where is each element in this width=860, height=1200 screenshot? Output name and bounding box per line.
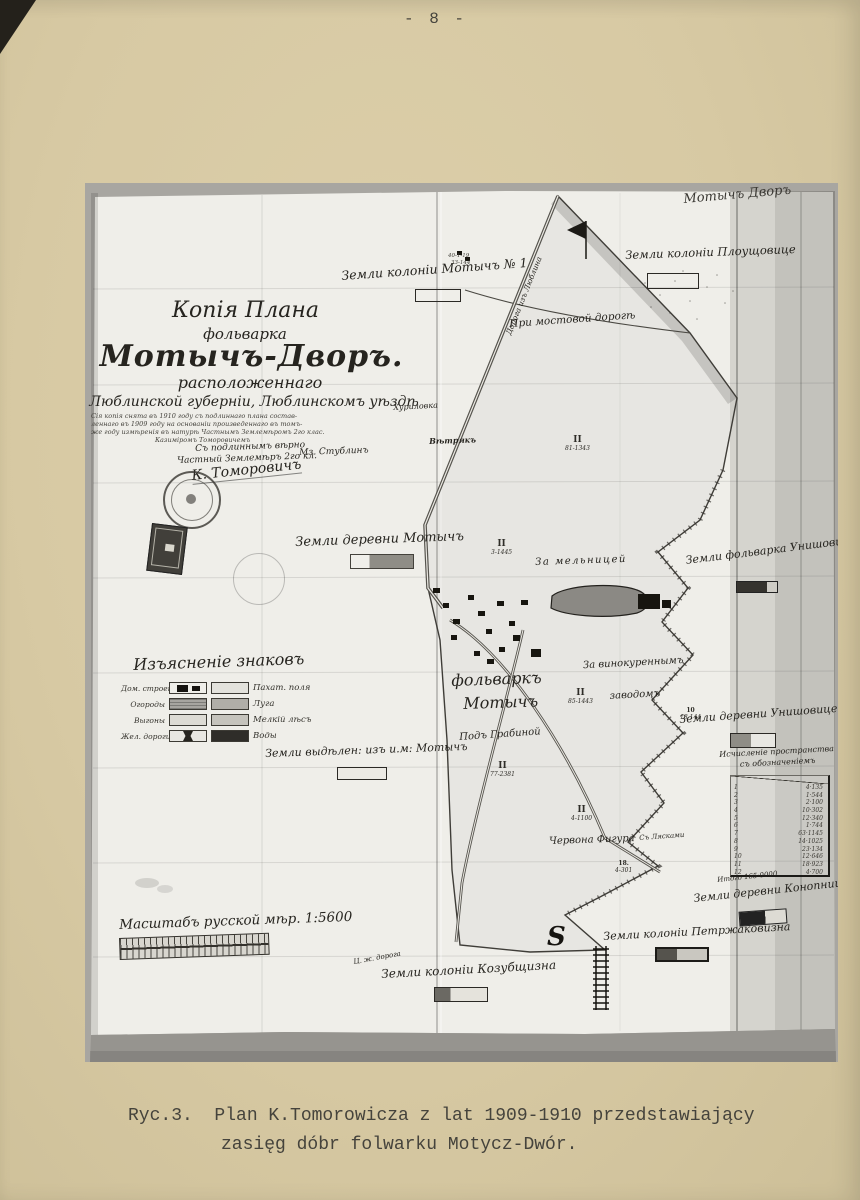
pond xyxy=(551,585,648,616)
page-number: - 8 - xyxy=(404,10,467,28)
legend-swatch-railways xyxy=(169,730,207,742)
tiny-note: 40-1-19 xyxy=(447,253,470,259)
legend-right-label: Луга xyxy=(253,699,274,709)
legend-left-label: Дом. строенія xyxy=(121,684,165,693)
map-title-gubernia: Люблинской губерніи, Люблинскомъ уѣздѣ xyxy=(85,395,429,410)
legend-swatch-gardens xyxy=(169,698,207,710)
legend-row: Огороды Луга xyxy=(121,696,311,712)
table-row: 14·135 xyxy=(731,784,828,792)
land-swatch xyxy=(647,273,699,289)
map-title-line1: Копія Плана xyxy=(143,299,348,322)
legend-left-label: Жел. дороги xyxy=(121,732,165,741)
folwark-motycz-label-2: Мотычъ xyxy=(463,693,538,712)
table-row: 923·134 xyxy=(731,846,828,854)
table-row: 1118·923 xyxy=(731,861,828,869)
parcel-marker: II85-1443 xyxy=(568,688,593,705)
land-swatch xyxy=(415,289,461,302)
table-header-diagonal xyxy=(731,776,828,784)
land-swatch xyxy=(730,733,776,748)
parcel-marker: 1018-144 xyxy=(680,707,701,721)
legend-swatch-pastures xyxy=(169,714,207,726)
scan-corner-shadow xyxy=(0,0,36,54)
parcel-marker: II81-1343 xyxy=(565,435,590,452)
map-title-note: леннаго въ 1909 году на основаніи произв… xyxy=(91,421,302,428)
folwark-motycz-label-1: фольваркъ xyxy=(451,670,542,690)
legend-left-label: Выгоны xyxy=(121,716,165,725)
map-photograph: S 40-1-19 33-144 Мотычъ Дворъ Дорога изъ… xyxy=(85,183,838,1062)
legend-swatch-waters xyxy=(211,730,249,742)
legend-right-label: Пахат. поля xyxy=(253,683,310,693)
map-title-line4: расположеннаго xyxy=(140,375,360,392)
figure-caption-line1: Ryc.3. Plan K.Tomorowicza z lat 1909-191… xyxy=(128,1106,755,1126)
table-row: 21·544 xyxy=(731,792,828,800)
legend-right-label: Мелкій лѣсъ xyxy=(253,715,311,725)
scanned-document-page: - 8 - xyxy=(0,0,860,1200)
legend-left-label: Огороды xyxy=(121,700,165,709)
table-row: 410·302 xyxy=(731,807,828,815)
legend-row: Выгоны Мелкій лѣсъ xyxy=(121,712,311,728)
legend-row: Дом. строенія Пахат. поля xyxy=(121,680,311,696)
railway-s-mark: S xyxy=(547,922,566,952)
table-row: 814·1025 xyxy=(731,838,828,846)
parcel-marker: 18.4-301 xyxy=(615,860,632,874)
map-title-note: же году измѣренія въ натурѣ Частнымъ Зем… xyxy=(91,429,325,436)
land-swatch xyxy=(337,767,387,780)
legend-swatch-meadows xyxy=(211,698,249,710)
legend-right-label: Воды xyxy=(253,731,277,741)
parcel-marker: II4-1100 xyxy=(571,805,592,822)
parcel-marker: II3-1445 xyxy=(491,539,512,556)
table-row: 61·744 xyxy=(731,822,828,830)
parcel-marker: II77-2381 xyxy=(490,761,515,778)
legend-swatch-fields xyxy=(211,682,249,694)
table-row: 763·1145 xyxy=(731,830,828,838)
table-row: 32·100 xyxy=(731,799,828,807)
map-title-name: Мотычъ-Дворъ. xyxy=(85,341,424,373)
field-label-vetryak: Вѣтрякъ xyxy=(429,435,476,445)
figure-caption-line2: zasięg dóbr folwarku Motycz-Dwór. xyxy=(221,1135,577,1155)
revenue-stamp xyxy=(146,523,188,575)
round-seal-stamp xyxy=(163,471,221,529)
land-swatch xyxy=(350,554,414,569)
table-row: 512·340 xyxy=(731,815,828,823)
area-computation-table: 14·135 21·544 32·100 410·302 512·340 61·… xyxy=(730,775,830,877)
legend-row: Жел. дороги Воды xyxy=(121,728,311,744)
faint-seal-stamp xyxy=(233,553,285,605)
mill-buildings xyxy=(638,594,660,609)
legend-swatch-buildings xyxy=(169,682,207,694)
table-row: 1012·646 xyxy=(731,853,828,861)
land-swatch xyxy=(655,947,709,962)
land-swatch xyxy=(434,987,488,1002)
map-title-note: Сія копія снята въ 1910 году съ подлинна… xyxy=(91,413,297,420)
legend-swatch-scrub xyxy=(211,714,249,726)
map-legend: Дом. строенія Пахат. поля Огороды Луга В… xyxy=(121,680,311,744)
land-swatch xyxy=(736,581,778,593)
